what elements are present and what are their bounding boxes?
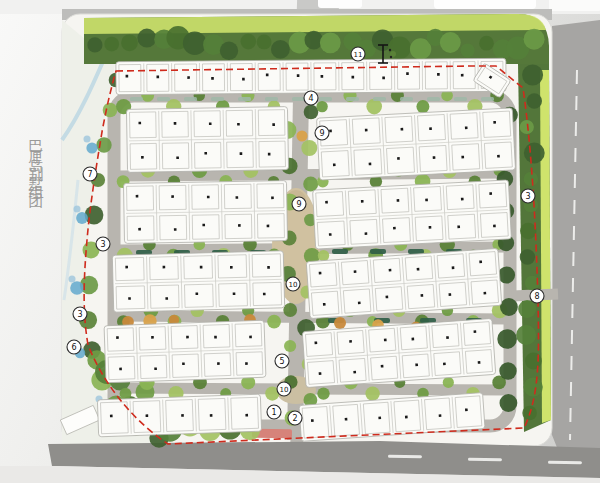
hedge (238, 97, 251, 101)
tree (137, 29, 156, 48)
tree (320, 32, 341, 53)
plan-title: 巴厘岛别墅组团 (26, 128, 45, 191)
unit-dot (211, 77, 214, 80)
unit-dot (126, 75, 129, 78)
tree (318, 250, 329, 261)
tree (85, 206, 104, 225)
unit-dot (489, 192, 492, 195)
unit-dot (361, 200, 364, 203)
tree (499, 362, 516, 379)
hedge (454, 97, 467, 101)
unit-dot (354, 270, 357, 273)
unit-dot (365, 232, 368, 235)
unit-dot (323, 303, 326, 306)
unit-dot (393, 227, 396, 230)
tree (96, 137, 111, 152)
page-edge-tab (549, 0, 600, 11)
unit-dot (415, 363, 418, 366)
unit-dot (479, 260, 482, 263)
hedge (481, 97, 494, 101)
outer-road-east (546, 20, 600, 470)
tree (524, 143, 545, 164)
unit-dot (329, 130, 332, 133)
water-patch (69, 276, 76, 283)
unit-dot (267, 266, 270, 269)
unit-dot (195, 292, 198, 295)
plan-marker-label: 7 (87, 170, 92, 179)
water-patch (74, 206, 81, 213)
hedge (373, 97, 386, 101)
unit-dot (156, 76, 159, 79)
unit-dot (349, 340, 352, 343)
plan-marker-label: 3 (525, 192, 530, 201)
plan-marker-10: 10 (286, 277, 300, 291)
unit-dot (245, 362, 248, 365)
unit-dot (420, 294, 423, 297)
tree (522, 65, 543, 86)
unit-dot (443, 362, 446, 365)
unit-dot (384, 339, 387, 342)
unit-dot (146, 414, 149, 417)
unit-dot (151, 336, 154, 339)
plan-marker-label: 3 (100, 240, 105, 249)
unit-dot (181, 414, 184, 417)
hedge (319, 97, 332, 101)
tree (334, 317, 346, 329)
unit-dot (240, 152, 243, 155)
unit-dot (136, 195, 139, 198)
villa-block-north-row (116, 58, 506, 94)
unit-dot (233, 292, 236, 295)
unit-dot (267, 225, 270, 228)
unit-dot (397, 157, 400, 160)
villa-block-slab (97, 394, 261, 437)
hedge (292, 97, 305, 101)
unit-dot (345, 418, 348, 421)
plan-marker-label: 4 (308, 94, 313, 103)
unit-dot (381, 365, 384, 368)
villa-block-west-3 (112, 251, 284, 312)
unit-dot (461, 156, 464, 159)
hedge (408, 249, 424, 254)
hedge (427, 97, 440, 101)
unit-dot (311, 419, 314, 422)
unit-dot (351, 76, 354, 79)
unit-dot (116, 336, 119, 339)
unit-dot (478, 361, 481, 364)
unit-dot (353, 371, 356, 374)
unit-dot (437, 73, 440, 76)
unit-dot (378, 416, 381, 419)
hedge (400, 97, 413, 101)
unit-dot (329, 233, 332, 236)
tree (461, 43, 475, 57)
villa-block-east-1 (317, 108, 516, 180)
villa-block-west-5 (97, 394, 261, 437)
hedge (184, 97, 197, 101)
plan-marker-9: 9 (315, 126, 329, 140)
tree (284, 340, 296, 352)
unit-dot (452, 266, 455, 269)
unit-dot (174, 228, 177, 231)
unit-dot (358, 301, 361, 304)
tree (121, 34, 138, 51)
unit-dot (297, 74, 300, 77)
tree (241, 34, 257, 50)
tree (304, 105, 319, 120)
unit-dot (176, 156, 179, 159)
plan-marker-label: 5 (279, 357, 284, 366)
unit-dot (214, 336, 217, 339)
villa-block-west-1 (126, 107, 288, 173)
tree (120, 388, 132, 400)
water-patch (84, 136, 91, 143)
unit-dot (497, 155, 500, 158)
unit-dot (236, 196, 239, 199)
tree (520, 249, 535, 264)
tree (497, 329, 517, 349)
unit-dot (186, 336, 189, 339)
unit-dot (417, 268, 420, 271)
unit-dot (217, 362, 220, 365)
plan-marker-label: 8 (534, 292, 539, 301)
tree (316, 101, 327, 112)
unit-dot (209, 122, 212, 125)
unit-dot (493, 121, 496, 124)
site-plan-drawing: 114979331083651012 (0, 0, 600, 483)
unit-dot (272, 123, 275, 126)
tree (416, 100, 429, 113)
villa-block-east-2 (313, 180, 512, 249)
tree (301, 140, 317, 156)
unit-dot (389, 269, 392, 272)
plan-marker-5: 5 (275, 354, 289, 368)
unit-dot (429, 127, 432, 130)
unit-dot (386, 296, 389, 299)
unit-dot (411, 338, 414, 341)
unit-dot (365, 129, 368, 132)
tree (500, 394, 518, 412)
water-patch (70, 281, 84, 295)
tree (220, 42, 238, 60)
tree (500, 298, 518, 316)
unit-dot (187, 76, 190, 79)
unit-dot (141, 156, 144, 159)
unit-dot (245, 414, 248, 417)
plan-marker-2: 2 (288, 411, 302, 425)
page-edge-tab (434, 0, 536, 9)
unit-dot (174, 122, 177, 125)
unit-dot (382, 77, 385, 80)
plan-marker-label: 2 (292, 414, 297, 423)
unit-dot (461, 198, 464, 201)
unit-dot (266, 74, 269, 77)
unit-dot (249, 336, 252, 339)
plan-marker-3: 3 (73, 307, 87, 321)
tree (104, 37, 119, 52)
tree (317, 387, 329, 399)
tree (525, 353, 542, 370)
plan-marker-label: 1 (271, 408, 276, 417)
tree (365, 386, 379, 400)
unit-dot (165, 297, 168, 300)
hedge (370, 249, 386, 254)
hedge (265, 97, 278, 101)
unit-dot (238, 224, 241, 227)
unit-dot (207, 196, 210, 199)
plan-marker-label: 6 (71, 343, 76, 352)
tree (443, 377, 454, 388)
unit-dot (319, 272, 322, 275)
plan-marker-6: 6 (67, 340, 81, 354)
unit-dot (110, 415, 113, 418)
tree (366, 99, 382, 115)
plan-marker-label: 10 (280, 386, 289, 394)
plan-marker-7: 7 (83, 167, 97, 181)
tree (297, 131, 308, 142)
tree (524, 172, 538, 186)
plan-marker-label: 11 (354, 51, 363, 59)
unit-dot (271, 197, 274, 200)
plan-marker-8: 8 (530, 289, 544, 303)
unit-dot (314, 341, 317, 344)
tree (520, 120, 534, 134)
tree (283, 303, 297, 317)
unit-dot (483, 292, 486, 295)
plan-marker-label: 10 (289, 281, 298, 289)
unit-dot (461, 74, 464, 77)
plan-marker-11: 11 (351, 47, 365, 61)
tree (271, 40, 290, 59)
villa-block-west-2 (123, 181, 287, 244)
tree (524, 377, 543, 396)
unit-dot (204, 152, 207, 155)
plan-marker-label: 3 (77, 310, 82, 319)
unit-dot (119, 368, 122, 371)
villa-block-west-4 (104, 320, 266, 383)
tree (440, 32, 461, 53)
tree (498, 266, 515, 283)
hedge (346, 97, 359, 101)
site-plan-photo: 114979331083651012 巴厘岛别墅组团 (0, 0, 600, 483)
unit-dot (163, 266, 166, 269)
unit-dot (237, 123, 240, 126)
tree (267, 315, 281, 329)
tree (303, 177, 318, 192)
tree (257, 35, 272, 50)
tree (527, 93, 542, 108)
plan-marker-3: 3 (96, 237, 110, 251)
unit-dot (242, 78, 245, 81)
unit-dot (230, 266, 233, 269)
plan-marker-9: 9 (292, 197, 306, 211)
water-patch (76, 212, 88, 224)
unit-dot (493, 225, 496, 228)
unit-dot (446, 336, 449, 339)
unit-dot (474, 330, 477, 333)
tree (183, 31, 207, 55)
unit-dot (333, 163, 336, 166)
tree (516, 325, 536, 345)
plan-marker-label: 9 (296, 200, 301, 209)
unit-dot (138, 228, 141, 231)
unit-dot (401, 128, 404, 131)
unit-dot (268, 153, 271, 156)
unit-dot (128, 297, 131, 300)
page-edge-tab (318, 0, 362, 8)
tree (479, 36, 494, 51)
unit-dot (202, 224, 205, 227)
plan-marker-3: 3 (521, 189, 535, 203)
unit-dot (200, 266, 203, 269)
plan-marker-1: 1 (267, 405, 281, 419)
tree (524, 29, 545, 50)
plan-marker-4: 4 (304, 91, 318, 105)
tree (518, 300, 536, 318)
unit-dot (439, 414, 442, 417)
unit-dot (171, 195, 174, 198)
unit-dot (263, 293, 266, 296)
tree (87, 37, 102, 52)
unit-dot (125, 266, 128, 269)
unit-dot (154, 367, 157, 370)
hedge (332, 249, 348, 254)
unit-dot (425, 199, 428, 202)
unit-dot (319, 372, 322, 375)
unit-dot (369, 163, 372, 166)
unit-dot (433, 156, 436, 159)
hedge (211, 97, 224, 101)
unit-dot (448, 293, 451, 296)
hedge (157, 97, 170, 101)
plan-marker-label: 9 (319, 129, 324, 138)
unit-dot (457, 225, 460, 228)
unit-dot (210, 414, 213, 417)
unit-dot (465, 126, 468, 129)
tree (520, 223, 536, 239)
hedge (130, 97, 143, 101)
unit-dot (138, 122, 141, 125)
unit-dot (405, 416, 408, 419)
unit-dot (429, 226, 432, 229)
unit-dot (406, 72, 409, 75)
unit-dot (182, 362, 185, 365)
water-patch (86, 142, 97, 153)
unit-dot (321, 75, 324, 78)
plan-marker-10: 10 (277, 382, 291, 396)
unit-dot (325, 201, 328, 204)
unit-dot (465, 408, 468, 411)
unit-dot (397, 199, 400, 202)
